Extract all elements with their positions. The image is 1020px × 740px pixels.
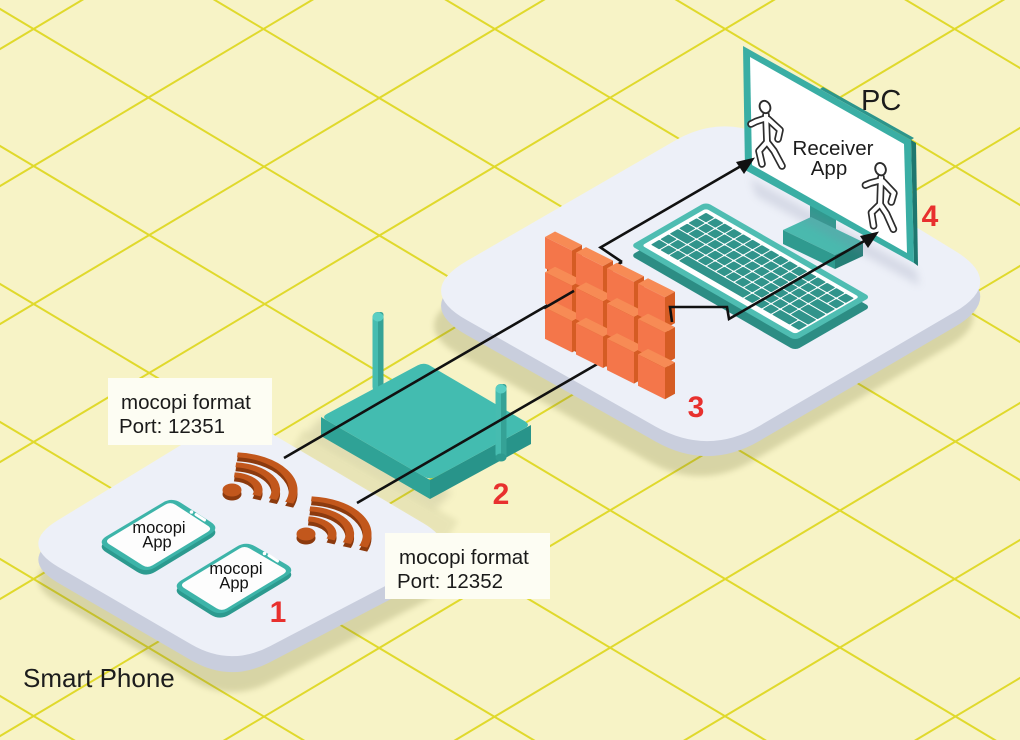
svg-text:PC: PC bbox=[861, 85, 901, 117]
svg-text:Port: 12352: Port: 12352 bbox=[397, 570, 503, 593]
svg-text:3: 3 bbox=[688, 391, 705, 424]
svg-text:Smart Phone: Smart Phone bbox=[23, 663, 175, 693]
svg-text:4: 4 bbox=[922, 200, 939, 233]
svg-text:App: App bbox=[811, 157, 847, 180]
svg-text:App: App bbox=[219, 575, 248, 593]
svg-text:1: 1 bbox=[270, 596, 287, 629]
svg-text:Port: 12351: Port: 12351 bbox=[119, 415, 225, 438]
svg-text:mocopi format: mocopi format bbox=[399, 546, 529, 569]
svg-text:App: App bbox=[142, 534, 171, 552]
svg-text:2: 2 bbox=[493, 478, 510, 511]
svg-text:mocopi format: mocopi format bbox=[121, 391, 251, 414]
